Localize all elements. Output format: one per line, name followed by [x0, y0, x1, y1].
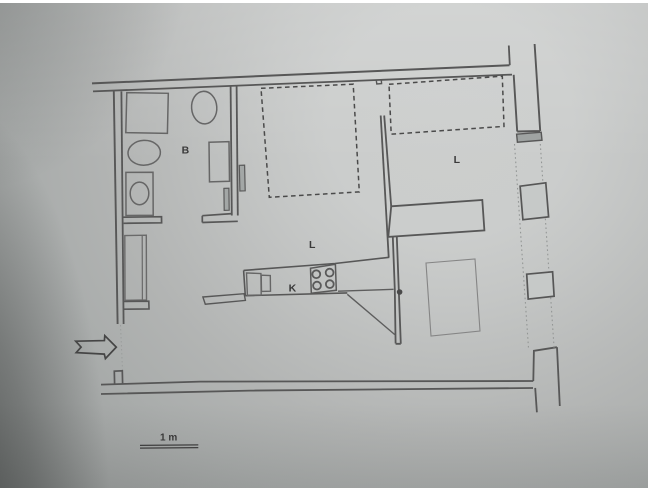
svg-text:K: K — [289, 282, 297, 294]
svg-text:B: B — [182, 145, 190, 157]
svg-text:1 m: 1 m — [160, 432, 177, 443]
svg-text:L: L — [454, 154, 461, 166]
svg-text:L: L — [309, 239, 316, 251]
